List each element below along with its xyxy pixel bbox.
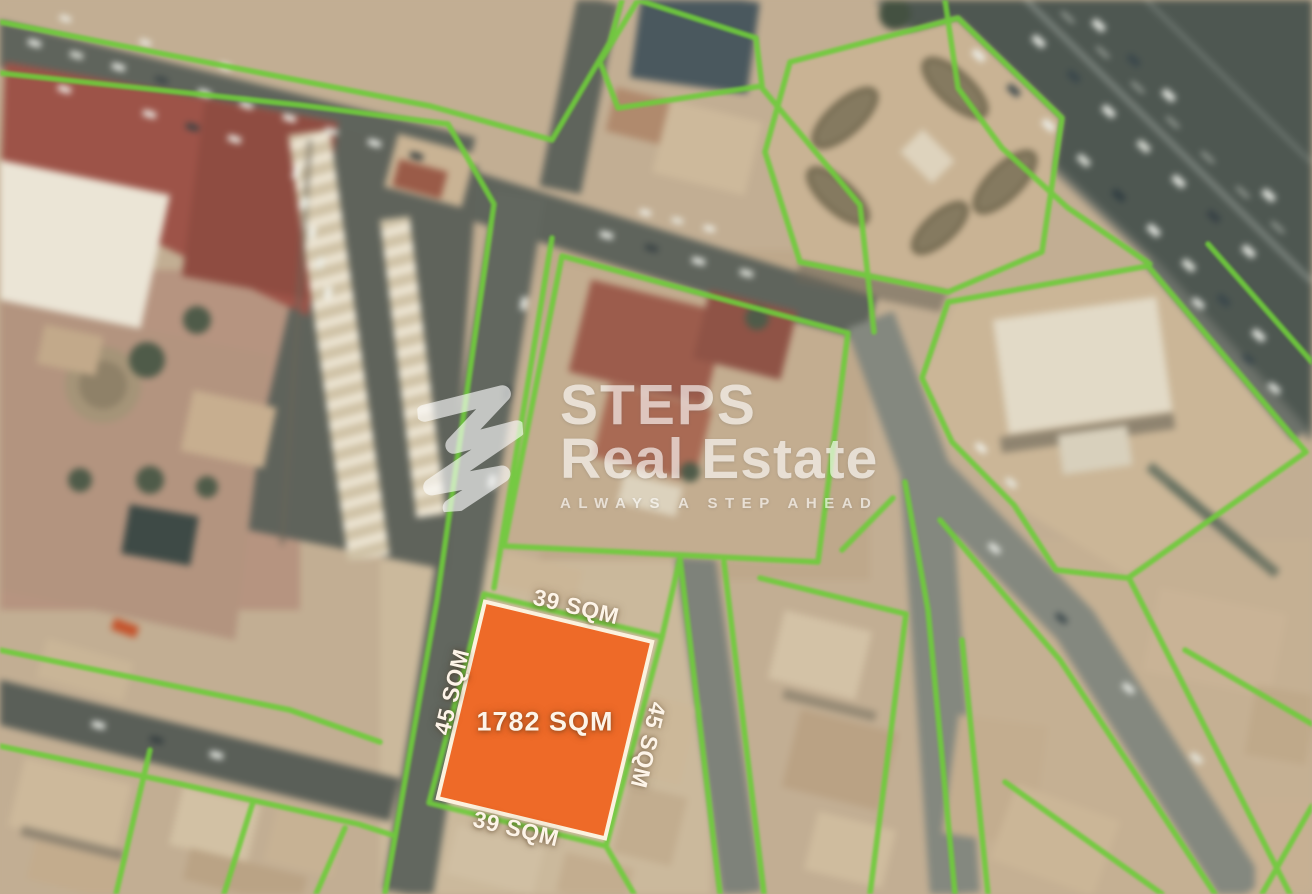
plot-area-label: 1782 SQM xyxy=(476,707,613,738)
steps-zigzag-logo-icon xyxy=(420,384,524,510)
watermark-brand-line1: STEPS xyxy=(560,378,878,433)
watermark-tagline: ALWAYS A STEP AHEAD xyxy=(560,495,878,512)
satellite-map-image: 1782 SQM 39 SQM 45 SQM 45 SQM 39 SQM STE… xyxy=(0,0,1312,894)
watermark-brand-line2: Real Estate xyxy=(560,433,878,485)
